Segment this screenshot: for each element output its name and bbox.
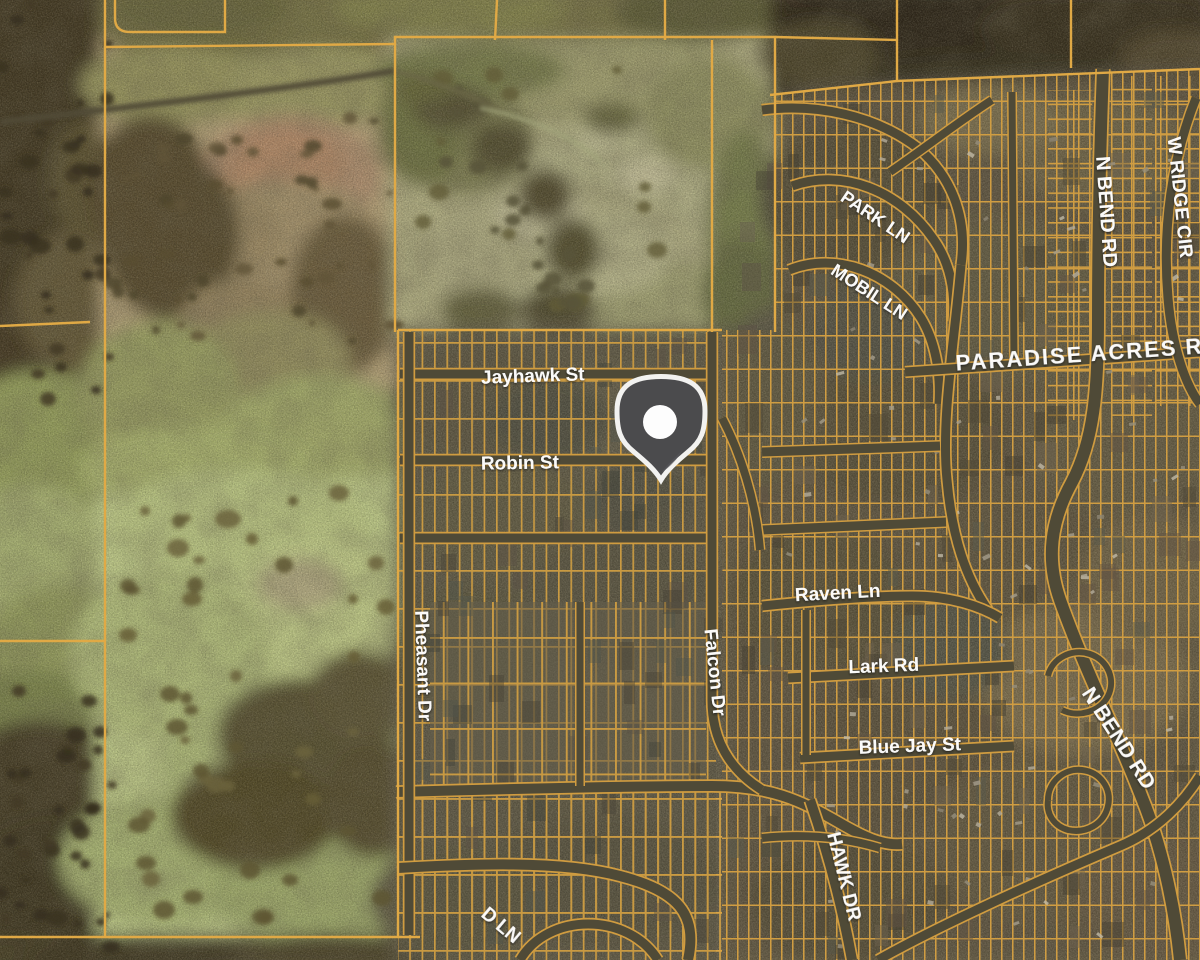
svg-text:Raven Ln: Raven Ln	[794, 581, 881, 606]
svg-text:Lark Rd: Lark Rd	[848, 655, 919, 678]
svg-text:Pheasant Dr: Pheasant Dr	[410, 610, 435, 722]
svg-text:Jayhawk St: Jayhawk St	[481, 364, 586, 389]
svg-text:Blue Jay St: Blue Jay St	[858, 734, 962, 759]
svg-text:Robin St: Robin St	[481, 452, 560, 474]
